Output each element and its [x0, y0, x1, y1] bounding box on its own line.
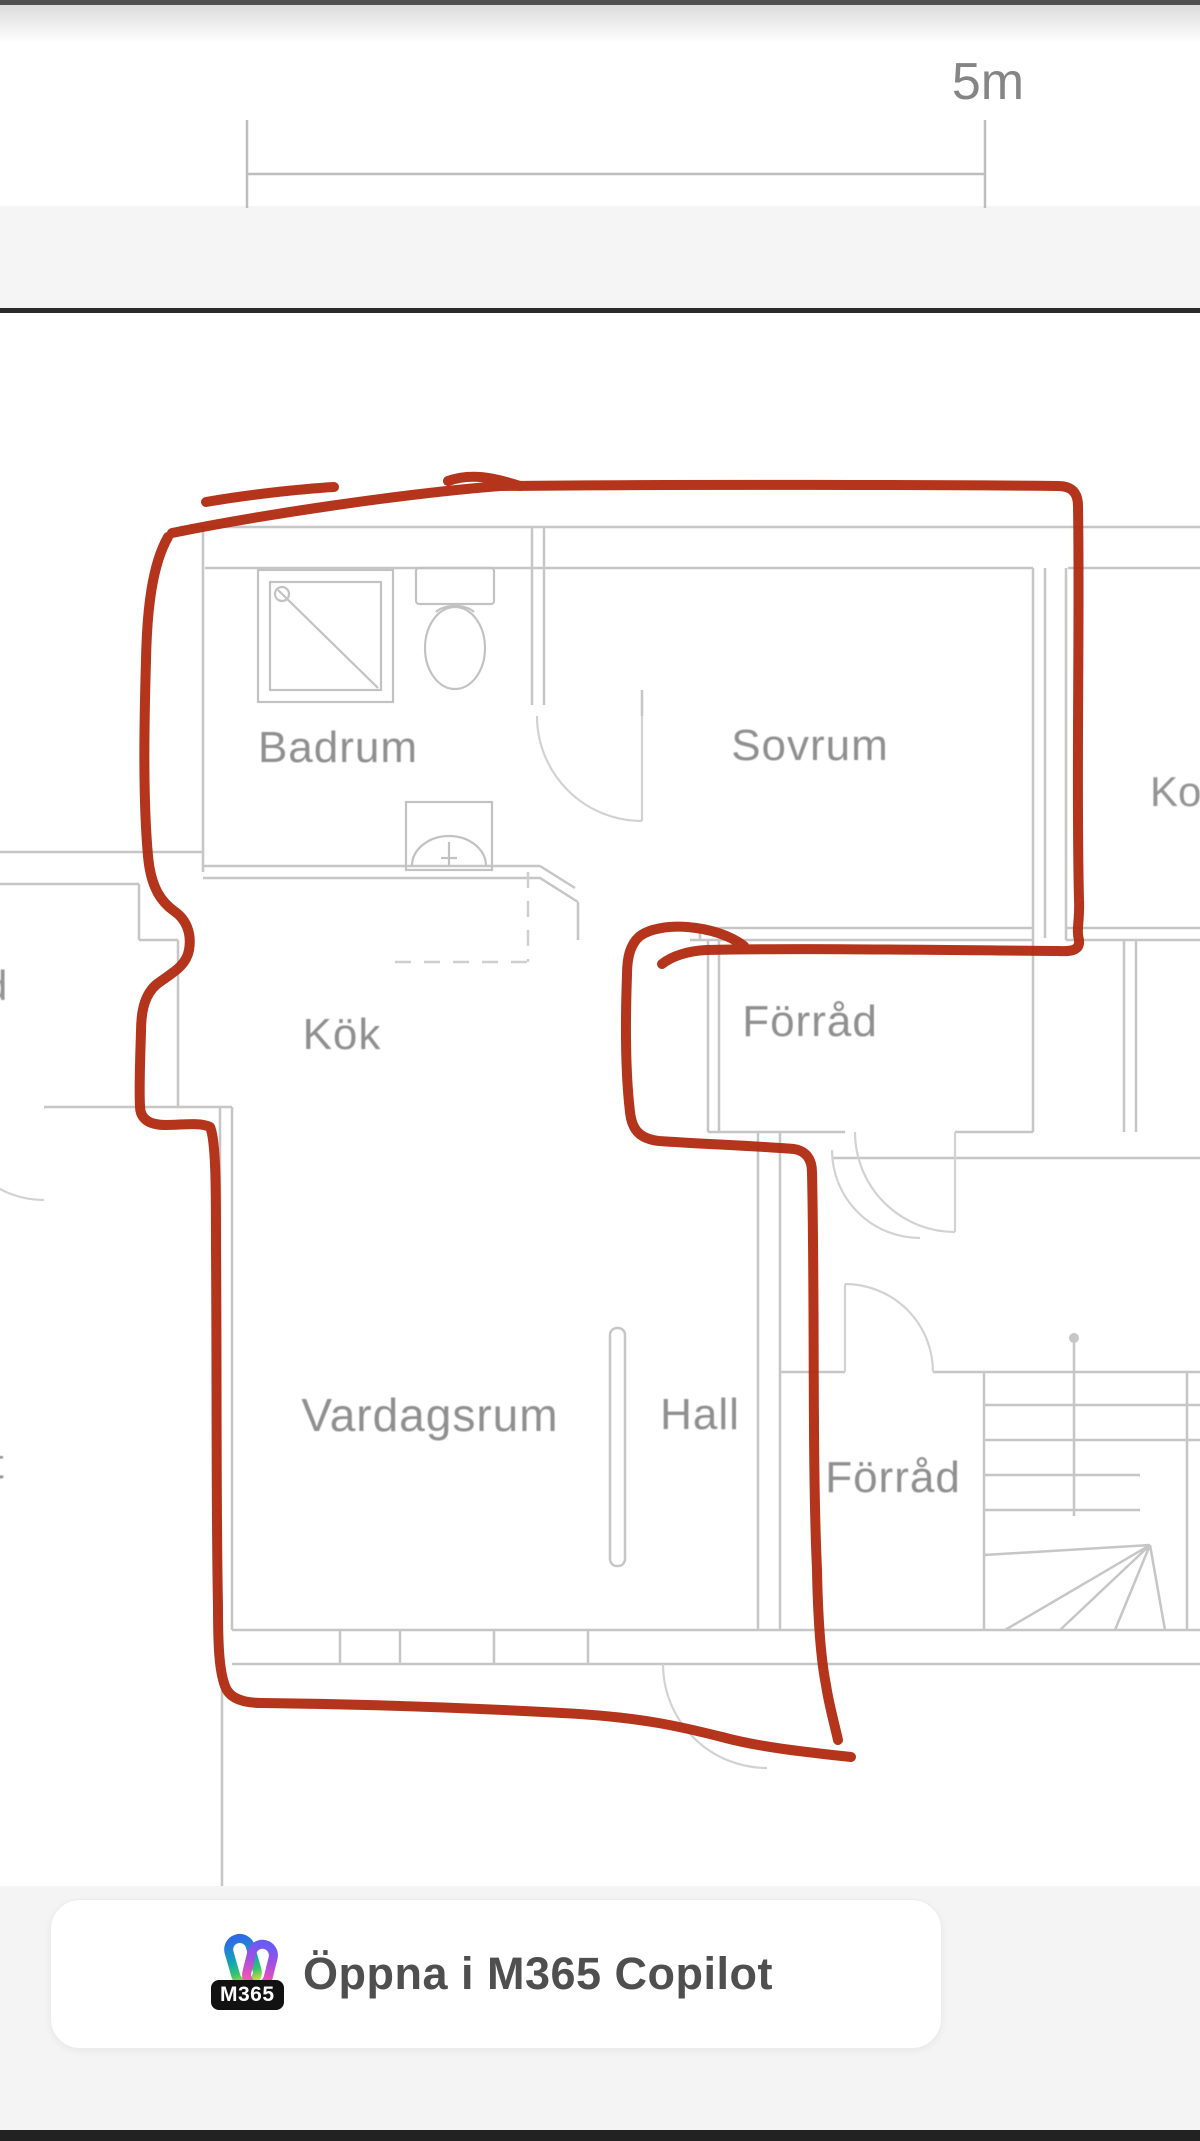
wall-badrum-right — [532, 527, 642, 716]
hall-divider-wall — [610, 1328, 625, 1566]
room-label-forrad-upper: Förråd — [742, 997, 878, 1047]
separator-line — [0, 308, 1200, 313]
open-in-copilot-label: Öppna i M365 Copilot — [303, 1948, 773, 2000]
wall-kitchen-left — [0, 852, 232, 1107]
wall-right-neighbor — [832, 940, 1200, 1158]
room-label-hall: Hall — [660, 1390, 740, 1440]
partial-label-right: Ko — [1150, 768, 1200, 816]
room-label-sovrum: Sovrum — [731, 721, 889, 771]
bathroom-fixtures — [258, 568, 494, 870]
door-forrad-lower — [845, 1284, 933, 1372]
annotation-stray-stroke — [206, 487, 334, 502]
header-gray-band — [0, 206, 1200, 308]
room-label-kok: Kök — [303, 1010, 382, 1060]
m365-badge: M365 — [211, 1980, 284, 2010]
m365-copilot-logo: M365 — [219, 1932, 283, 2012]
sink-icon — [406, 802, 492, 870]
scale-bar — [247, 120, 985, 208]
room-label-forrad-lower: Förråd — [825, 1453, 961, 1503]
door-neighbor-left — [0, 1107, 44, 1200]
stairs-newel-dot — [1069, 1333, 1079, 1343]
wall-mid-horizontal — [690, 928, 1200, 940]
door-entry — [663, 1664, 767, 1768]
wall-badrum-bottom — [203, 866, 578, 940]
top-bar-line — [0, 0, 1200, 5]
screenshot-root: 5m 5m Badrum Sovrum Kök Förråd Vardagsru… — [0, 0, 1200, 2141]
wall-hall-right — [758, 1132, 780, 1630]
annotation-forrad-loop — [626, 927, 838, 1740]
top-chrome — [0, 0, 1200, 313]
scale-bar-lines — [247, 120, 985, 208]
toilet-icon — [416, 568, 494, 689]
room-label-badrum: Badrum — [258, 723, 418, 773]
wall-bottom — [222, 1630, 1200, 1908]
bottom-bar — [0, 2130, 1200, 2141]
wall-outer-top — [180, 527, 1200, 872]
door-badrum — [537, 716, 642, 821]
kitchen-dashed-boundary — [395, 872, 528, 962]
floor-plan-walls — [0, 527, 1200, 1908]
room-label-vardagsrum: Vardagsrum — [301, 1388, 558, 1442]
red-annotation — [140, 477, 1080, 1757]
door-forrad-upper — [855, 1132, 955, 1232]
shower-icon — [258, 570, 393, 702]
partial-label-left-t: t — [0, 1440, 4, 1488]
stairs — [984, 1336, 1200, 1630]
open-in-copilot-button[interactable]: M365 Öppna i M365 Copilot — [50, 1899, 942, 2049]
floor-plan-canvas — [0, 0, 1200, 2141]
scale-label-top: 5m — [952, 52, 1024, 112]
top-bar-fade — [0, 5, 1200, 43]
wall-sovrum-right — [1033, 568, 1066, 940]
partial-label-left-d: d — [0, 962, 7, 1010]
